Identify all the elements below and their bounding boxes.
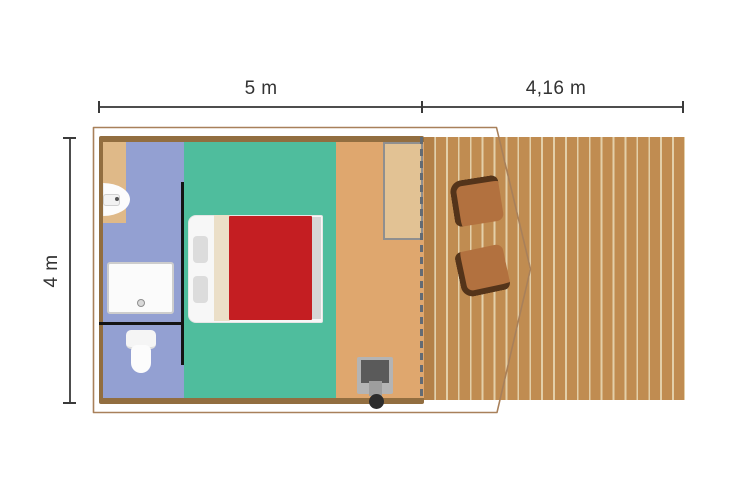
toilet-bowl-icon [131, 345, 151, 373]
tent-width-label: 5 m [211, 78, 311, 100]
deck-chair-icon [449, 174, 505, 227]
shower-drain-icon [137, 299, 145, 307]
dimension-tick [98, 101, 100, 113]
tent-depth-label: 4 m [41, 241, 63, 301]
wood-stove-knob [369, 394, 384, 409]
wood-stove-firebox [361, 360, 389, 383]
pillow-icon [193, 236, 208, 263]
dimension-tick [682, 101, 684, 113]
dimension-line-vertical [69, 138, 71, 404]
terrace-width-label: 4,16 m [506, 78, 606, 100]
floor-plan-canvas: 5 m 4,16 m 4 m [0, 0, 751, 500]
dimension-tick [421, 101, 423, 113]
dimension-line-horizontal [99, 106, 683, 108]
dimension-tick [63, 402, 76, 404]
dimension-tick [63, 137, 76, 139]
pillow-icon [193, 276, 208, 303]
washbasin-drain-icon [115, 197, 119, 201]
bed-duvet [229, 216, 312, 320]
bed-sheet-fold [214, 215, 230, 321]
partition-wall-horizontal [99, 322, 184, 325]
bed-side-edge [311, 217, 321, 319]
deck-plank-edge [424, 137, 435, 400]
wardrobe-icon [383, 142, 423, 240]
partition-wall-vertical [181, 182, 184, 365]
entrance-dashed-line [420, 137, 423, 397]
